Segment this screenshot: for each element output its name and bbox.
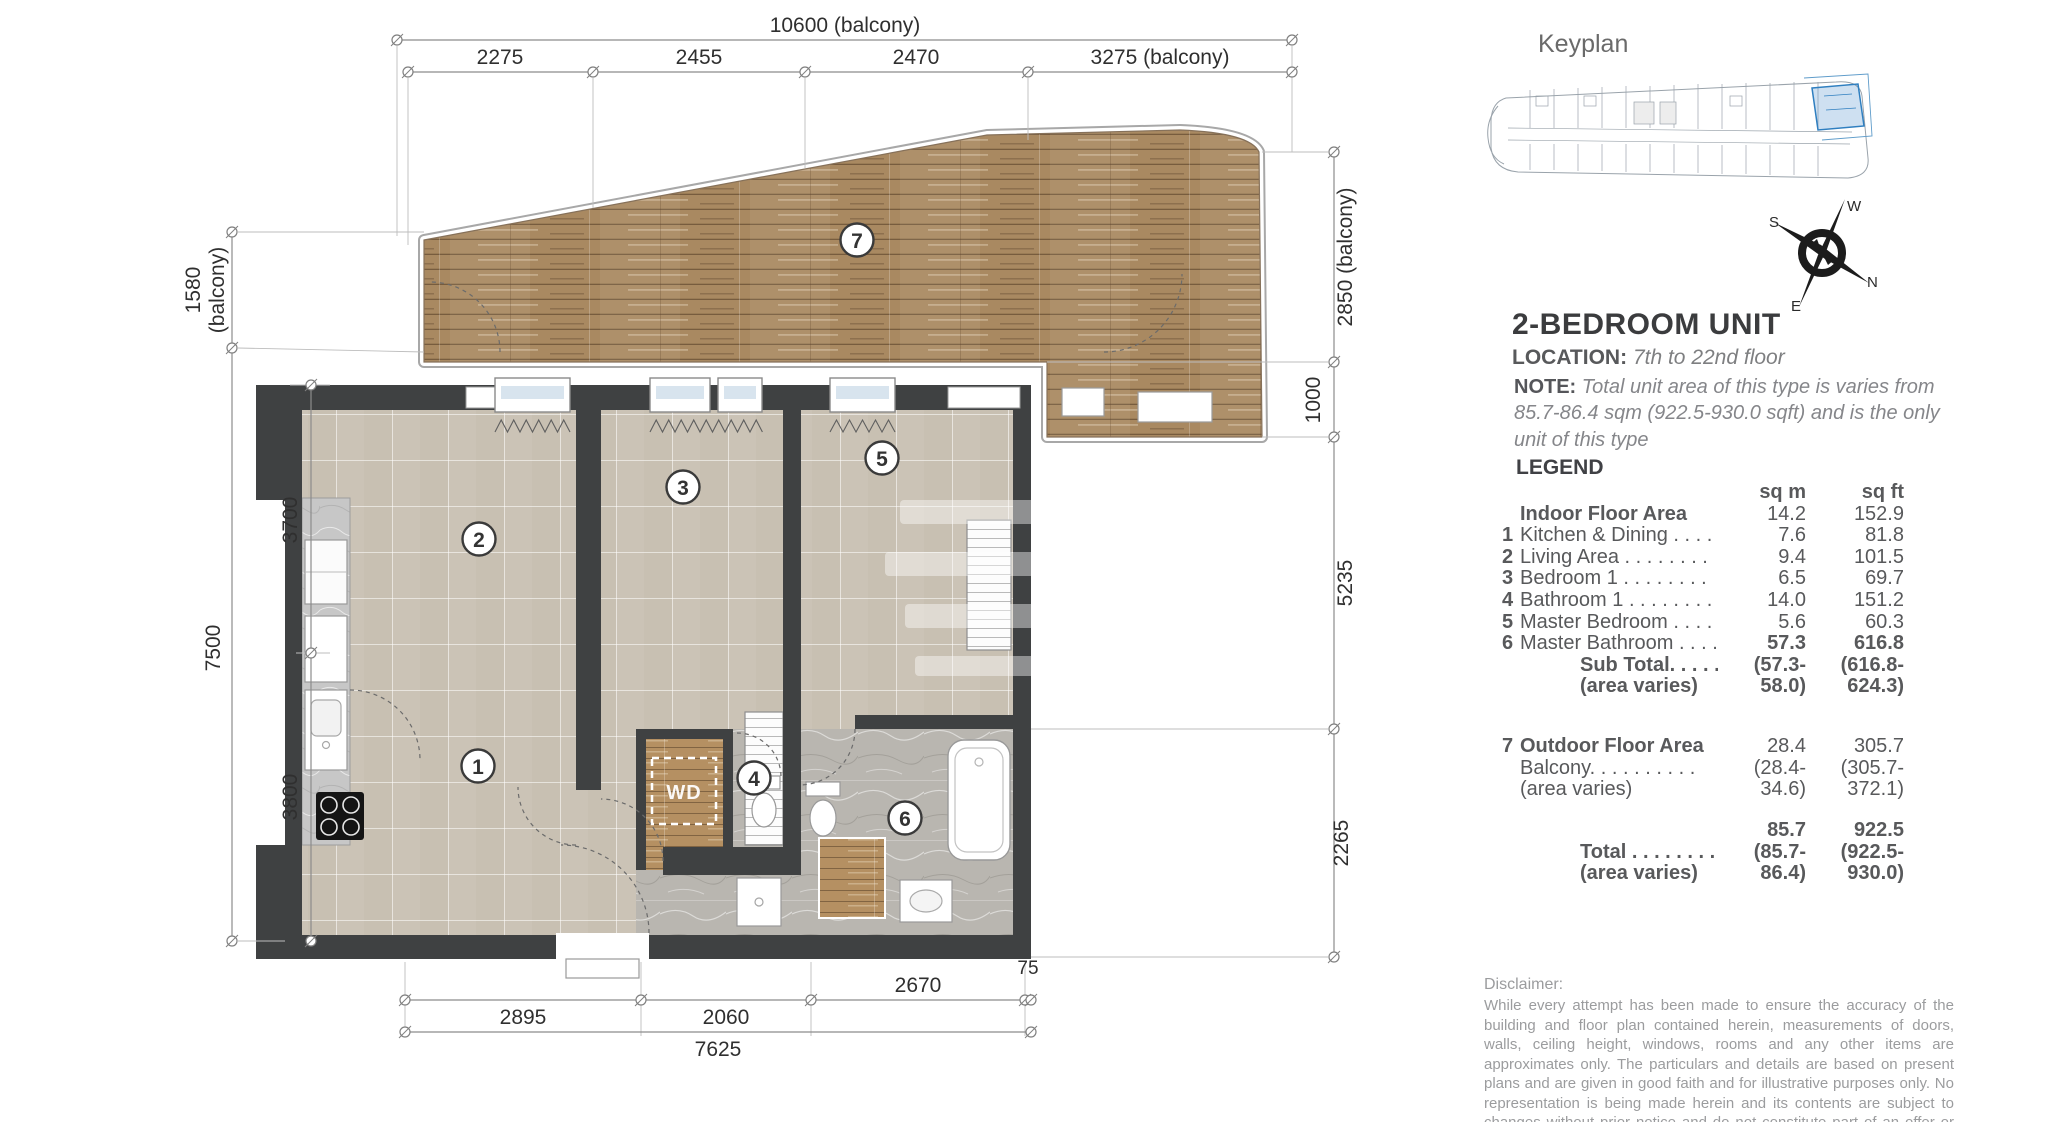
toilet-bowl [810, 800, 836, 836]
dim-7625: 7625 [695, 1038, 742, 1061]
balcony-door-right [948, 387, 1020, 408]
entry-step [566, 959, 639, 978]
balcony-planter [1138, 392, 1212, 422]
dim-7500: 7500 [202, 625, 225, 672]
location-label: LOCATION: [1512, 346, 1627, 369]
svg-text:1: 1 [472, 756, 484, 779]
floor-plan-drawing: WD [0, 0, 1460, 1122]
room-badge-5: 5 [866, 442, 899, 475]
toilet-bowl [752, 793, 776, 827]
svg-text:6: 6 [899, 808, 911, 831]
wall-pier-top-left [256, 385, 302, 500]
room-badge-4: 4 [738, 762, 771, 795]
room-badge-2: 2 [463, 523, 496, 556]
room-badge-6: 6 [889, 802, 922, 835]
wall-bottom [285, 935, 1031, 959]
disclaimer-text: While every attempt has been made to ens… [1484, 996, 1954, 1122]
dim-2895: 2895 [500, 1006, 547, 1029]
shower-deck [819, 838, 885, 918]
room-badge-1: 1 [462, 750, 495, 783]
disclaimer-label: Disclaimer: [1484, 976, 1954, 994]
location-line: LOCATION: 7th to 22nd floor [1512, 346, 1785, 370]
compass-e: E [1791, 298, 1801, 315]
legend-total-row: (area varies) 86.4) 930.0) [1502, 863, 1904, 885]
dim-5235: 5235 [1334, 560, 1357, 607]
svg-text:4: 4 [748, 768, 760, 791]
legend-subtotal-row2: (area varies) 58.0) 624.3) [1502, 676, 1904, 698]
dim-1580: 1580 [182, 267, 205, 314]
wall-living-bedroom1 [576, 410, 601, 790]
shower-tray [737, 878, 781, 926]
legend-row: 7 Outdoor Floor Area 28.4 305.7 [1502, 736, 1904, 758]
compass-w: W [1847, 198, 1862, 215]
legend-total-table: 85.7 922.5 Total . . . . . . . . . (85.7… [1502, 820, 1904, 885]
dim-2470: 2470 [893, 46, 940, 69]
legend-row: 1 Kitchen & Dining . . . . . 7.6 81.8 [1502, 525, 1904, 547]
wall-pier-bottom-left [256, 845, 302, 959]
legend-row: 4 Bathroom 1 . . . . . . . . 14.0 151.2 [1502, 590, 1904, 612]
keyplan [1484, 66, 1874, 206]
legend-total-row: 85.7 922.5 [1502, 820, 1904, 842]
note-label: NOTE: [1514, 376, 1576, 398]
svg-text:5: 5 [876, 448, 888, 471]
legend-subtotal-row: Sub Total. . . . . . . (57.3- (616.8- [1502, 655, 1904, 677]
keyplan-label: Keyplan [1538, 30, 1628, 59]
dim-3275: 3275 (balcony) [1091, 46, 1230, 69]
compass-rose: W S N E [1765, 195, 1885, 320]
legend-row: (area varies) 34.6) 372.1) [1502, 779, 1904, 801]
wall-wd-right [723, 729, 733, 870]
dim-1000: 1000 [1302, 377, 1325, 424]
location-value: 7th to 22nd floor [1633, 346, 1785, 369]
legend-total-row: Total . . . . . . . . . (85.7- (922.5- [1502, 842, 1904, 864]
window-living [495, 378, 570, 412]
entry-opening [556, 933, 649, 961]
legend-row: 3 Bedroom 1 . . . . . . . . 6.5 69.7 [1502, 568, 1904, 590]
dim-3800: 3800 [279, 774, 302, 821]
compass-star [1775, 199, 1869, 307]
balcony-planter [1062, 388, 1104, 416]
unit-title: 2-BEDROOM UNIT [1512, 308, 1781, 342]
dim-1580-balcony: (balcony) [206, 247, 229, 333]
dim-2850: 2850 (balcony) [1334, 188, 1357, 327]
note-block: NOTE: Total unit area of this type is va… [1514, 374, 1966, 453]
legend-row: Balcony. . . . . . . . . . (28.4- (305.7… [1502, 758, 1904, 780]
dim-2670: 2670 [895, 974, 942, 997]
legend-outdoor-table: 7 Outdoor Floor Area 28.4 305.7 Balcony.… [1502, 736, 1904, 801]
compass-s: S [1769, 214, 1779, 231]
svg-text:2: 2 [473, 529, 485, 552]
legend-row: Indoor Floor Area 14.2 152.9 [1502, 504, 1904, 526]
dim-2455: 2455 [676, 46, 723, 69]
floor-plan-page: WD [0, 0, 2048, 1122]
dim-2275: 2275 [477, 46, 524, 69]
svg-text:3: 3 [677, 477, 689, 500]
col-sqm: sq m [1718, 482, 1806, 504]
legend-row: 6 Master Bathroom . . . . . 57.3 616.8 [1502, 633, 1904, 655]
legend-header-row: sq m sq ft [1502, 482, 1904, 504]
wall-wd-left [636, 729, 646, 870]
compass-n: N [1867, 274, 1878, 291]
window-master-bedroom [830, 378, 895, 412]
disclaimer-block: Disclaimer: While every attempt has been… [1484, 976, 1954, 1122]
dim-75: 75 [1017, 958, 1038, 979]
room-badge-3: 3 [667, 471, 700, 504]
wardrobe-master-bedroom [967, 520, 1011, 650]
stove [316, 792, 364, 840]
col-sqft: sq ft [1806, 482, 1904, 504]
dim-top-total: 10600 (balcony) [770, 14, 921, 37]
wall-bedroom1-master [783, 410, 801, 875]
room-badge-7: 7 [841, 224, 874, 257]
legend-row: 2 Living Area . . . . . . . . 9.4 101.5 [1502, 547, 1904, 569]
legend-heading: LEGEND [1516, 456, 1604, 480]
legend-indoor-table: sq m sq ft Indoor Floor Area 14.2 152.9 … [1502, 482, 1904, 698]
svg-text:7: 7 [851, 230, 863, 253]
legend-row: 5 Master Bedroom . . . . . 5.6 60.3 [1502, 612, 1904, 634]
dim-2265: 2265 [1330, 820, 1353, 867]
wall-master-bottom [855, 715, 1013, 729]
window-bedroom1 [650, 378, 762, 412]
dim-3700: 3700 [279, 497, 302, 544]
dim-2060: 2060 [703, 1006, 750, 1029]
unit-floors [302, 410, 1013, 935]
wall-wd-top [636, 729, 733, 739]
note-text: Total unit area of this type is varies f… [1514, 376, 1940, 451]
wd-label: WD [666, 782, 701, 804]
